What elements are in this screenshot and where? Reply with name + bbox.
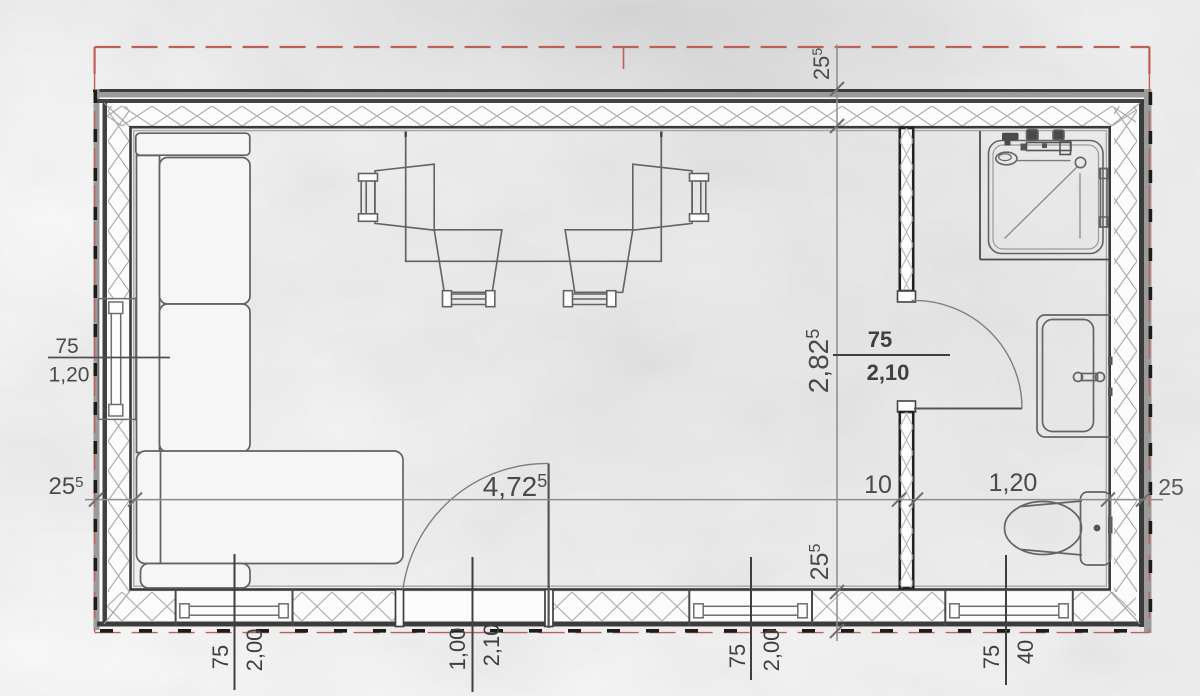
svg-text:2,10: 2,10 [867,360,910,385]
svg-text:1,00: 1,00 [445,628,470,671]
svg-text:1,20: 1,20 [989,469,1038,497]
svg-text:40: 40 [1013,640,1038,664]
svg-text:2,00: 2,00 [242,629,267,672]
svg-text:75: 75 [725,644,750,668]
svg-text:2,00: 2,00 [759,629,784,672]
svg-text:75: 75 [208,645,233,669]
svg-text:10: 10 [864,471,892,499]
svg-text:75: 75 [979,645,1004,669]
svg-text:2,10: 2,10 [479,624,504,667]
svg-text:1,20: 1,20 [49,364,90,387]
svg-text:75: 75 [55,335,78,358]
svg-text:25: 25 [1158,474,1184,500]
svg-text:75: 75 [868,327,892,352]
